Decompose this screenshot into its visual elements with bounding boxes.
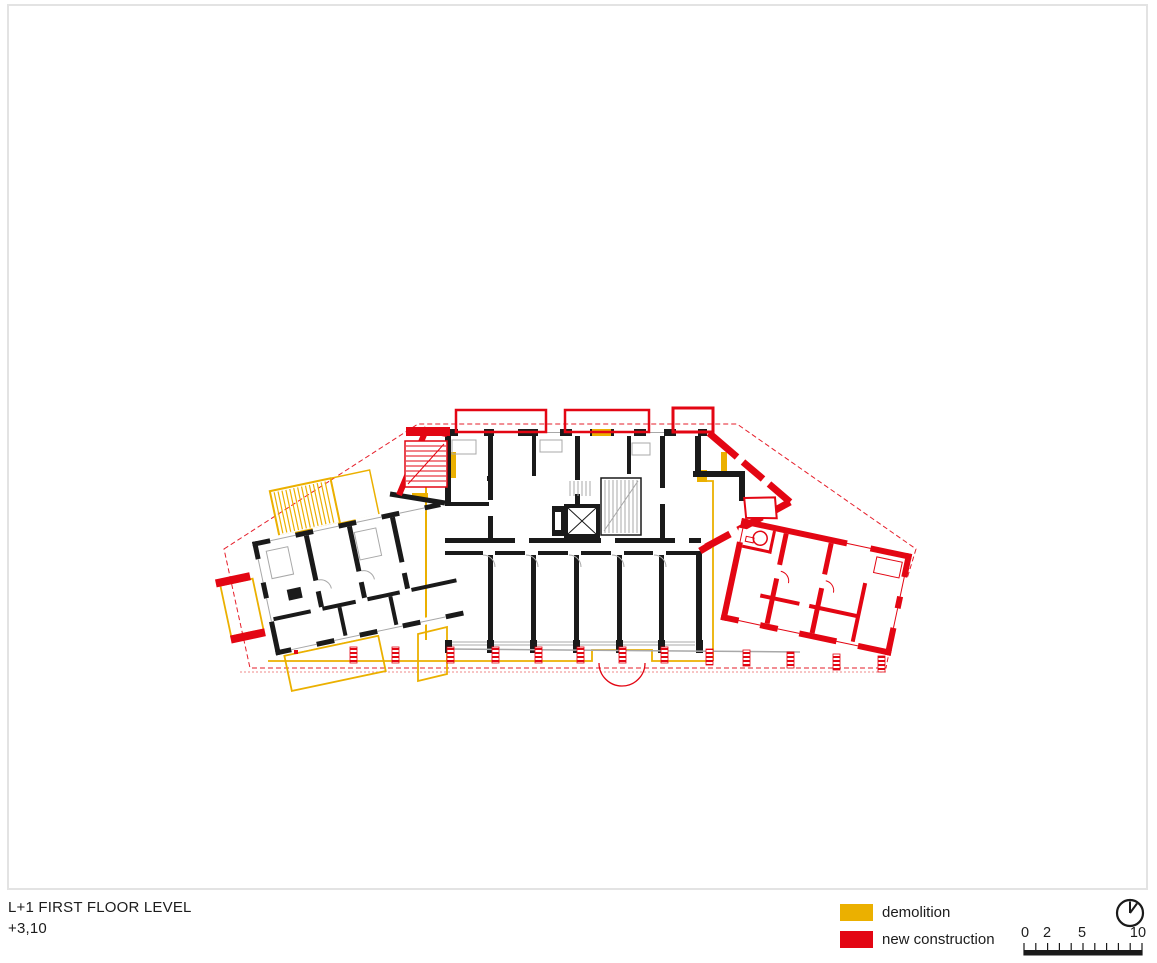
legend: demolition new construction [840,904,995,958]
scale-label-5: 5 [1078,925,1086,941]
legend-item-new-construction: new construction [840,931,995,948]
scale-bar: 0 2 5 10 [1019,925,1151,961]
scale-label-10: 10 [1130,925,1146,941]
scale-ruler [1019,943,1151,957]
legend-item-demolition: demolition [840,904,995,921]
scale-label-0: 0 [1021,925,1029,941]
elevator [552,506,598,536]
new-stair [405,441,447,487]
scale-label-2: 2 [1043,925,1051,941]
new-construction-swatch-icon [840,931,873,948]
new-right-wing [718,491,919,657]
new-construction-layer [294,408,919,686]
level-label: L+1 FIRST FLOOR LEVEL [8,897,192,918]
title-block: L+1 FIRST FLOOR LEVEL +3,10 [8,897,192,939]
floor-plan-drawing [0,0,1157,963]
legend-label-new-construction: new construction [882,931,995,948]
existing-left-wing [199,457,471,702]
legend-label-demolition: demolition [882,904,950,921]
entrance-arc [599,663,645,686]
elevation-label: +3,10 [8,918,192,939]
demolition-swatch-icon [840,904,873,921]
